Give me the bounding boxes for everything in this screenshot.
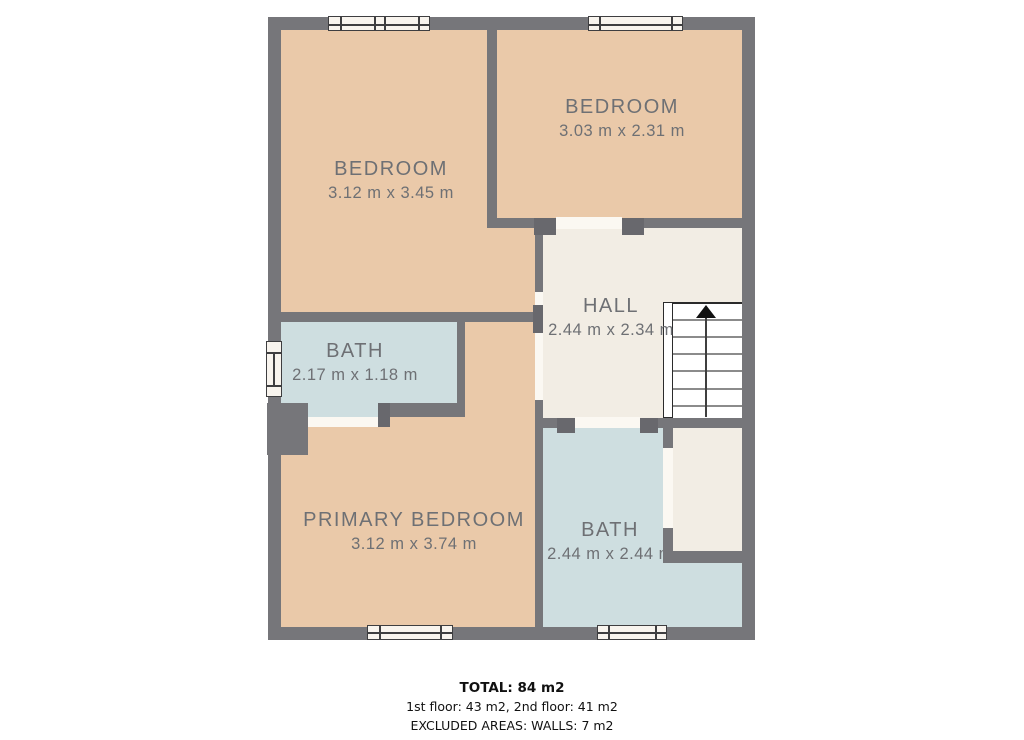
window-bath-2 (597, 625, 667, 640)
room-floor-bedroom-1-extension (487, 228, 535, 312)
window-rail (588, 24, 683, 26)
room-floor-bath-2-extension (663, 563, 742, 627)
wall-exterior-right (742, 17, 755, 640)
up-arrow-icon (696, 305, 716, 318)
room-label-bedroom-2: BEDROOM 3.03 m x 2.31 m (559, 97, 685, 141)
room-floor-closet (673, 428, 742, 551)
room-label-primary-bedroom: PRIMARY BEDROOM 3.12 m x 3.74 m (303, 510, 525, 554)
wall-bedroom-1-bottom (268, 312, 535, 322)
room-label-bath-2: BATH 2.44 m x 2.44 m (547, 520, 673, 564)
door-jamb (640, 418, 658, 433)
room-floor-bath-1-doorway (308, 403, 378, 417)
up-arrow-icon (705, 316, 707, 417)
wall-exterior-left (268, 17, 281, 640)
room-dimensions: 2.44 m x 2.34 m (548, 321, 674, 340)
excluded-areas-text: EXCLUDED AREAS: WALLS: 7 m2 (0, 717, 1024, 736)
door-jamb (622, 218, 644, 235)
room-name: PRIMARY BEDROOM (303, 510, 525, 531)
room-dimensions: 2.44 m x 2.44 m (547, 545, 673, 564)
stairs (672, 302, 742, 418)
area-summary: TOTAL: 84 m2 1st floor: 43 m2, 2nd floor… (0, 679, 1024, 735)
room-label-bath-1: BATH 2.17 m x 1.18 m (292, 341, 418, 385)
wall-exterior-bottom (268, 627, 755, 640)
room-dimensions: 3.12 m x 3.45 m (328, 184, 454, 203)
door-opening-hall-corridor (535, 333, 543, 400)
room-name: HALL (548, 296, 674, 317)
room-label-bedroom-1: BEDROOM 3.12 m x 3.45 m (328, 159, 454, 203)
window-mullion (273, 352, 275, 385)
wall-bedroom-divider (487, 30, 497, 218)
stair-tread (672, 405, 742, 407)
wall-hall-left-upper (535, 228, 543, 292)
wall-closet-divider-upper (663, 428, 673, 448)
door-jamb (378, 403, 390, 427)
room-dimensions: 3.12 m x 3.74 m (303, 535, 525, 554)
wall-hall-left-lower (535, 400, 543, 428)
window-bath-1-side (266, 341, 282, 397)
floor-areas-text: 1st floor: 43 m2, 2nd floor: 41 m2 (0, 698, 1024, 717)
room-dimensions: 2.17 m x 1.18 m (292, 366, 418, 385)
total-area-text: TOTAL: 84 m2 (0, 679, 1024, 698)
door-jamb (534, 218, 556, 235)
stair-tread (672, 370, 742, 372)
door-jamb (557, 418, 575, 433)
stair-tread (672, 336, 742, 338)
stair-tread (672, 319, 742, 321)
room-name: BEDROOM (559, 97, 685, 118)
wall-bath-2-left (535, 428, 543, 627)
window-rail (266, 385, 282, 387)
room-name: BATH (292, 341, 418, 362)
stair-tread (672, 353, 742, 355)
window-bedroom-1-double (328, 16, 430, 31)
window-rail (597, 632, 667, 634)
room-name: BEDROOM (328, 159, 454, 180)
window-rail (328, 24, 430, 26)
window-bedroom-2 (588, 16, 683, 31)
floor-plan: BEDROOM 3.12 m x 3.45 m BEDROOM 3.03 m x… (0, 0, 1024, 740)
floor-plan-page: BEDROOM 3.12 m x 3.45 m BEDROOM 3.03 m x… (0, 0, 1024, 740)
window-rail (367, 632, 453, 634)
door-opening-bath-1 (308, 417, 378, 427)
wall-closet-bottom (663, 551, 742, 563)
door-opening-hall-upper (535, 292, 543, 306)
window-primary-bedroom (367, 625, 453, 640)
room-floor-corridor (465, 322, 535, 427)
room-label-hall: HALL 2.44 m x 2.34 m (548, 296, 674, 340)
wall-chimney-bump (267, 403, 308, 455)
door-jamb (533, 305, 543, 333)
door-opening-closet (663, 448, 673, 528)
door-opening-bedroom-2 (556, 217, 622, 229)
room-dimensions: 3.03 m x 2.31 m (559, 122, 685, 141)
stair-tread (672, 388, 742, 390)
room-name: BATH (547, 520, 673, 541)
wall-bath-1-right (457, 321, 465, 417)
door-opening-bath-2 (575, 417, 640, 428)
